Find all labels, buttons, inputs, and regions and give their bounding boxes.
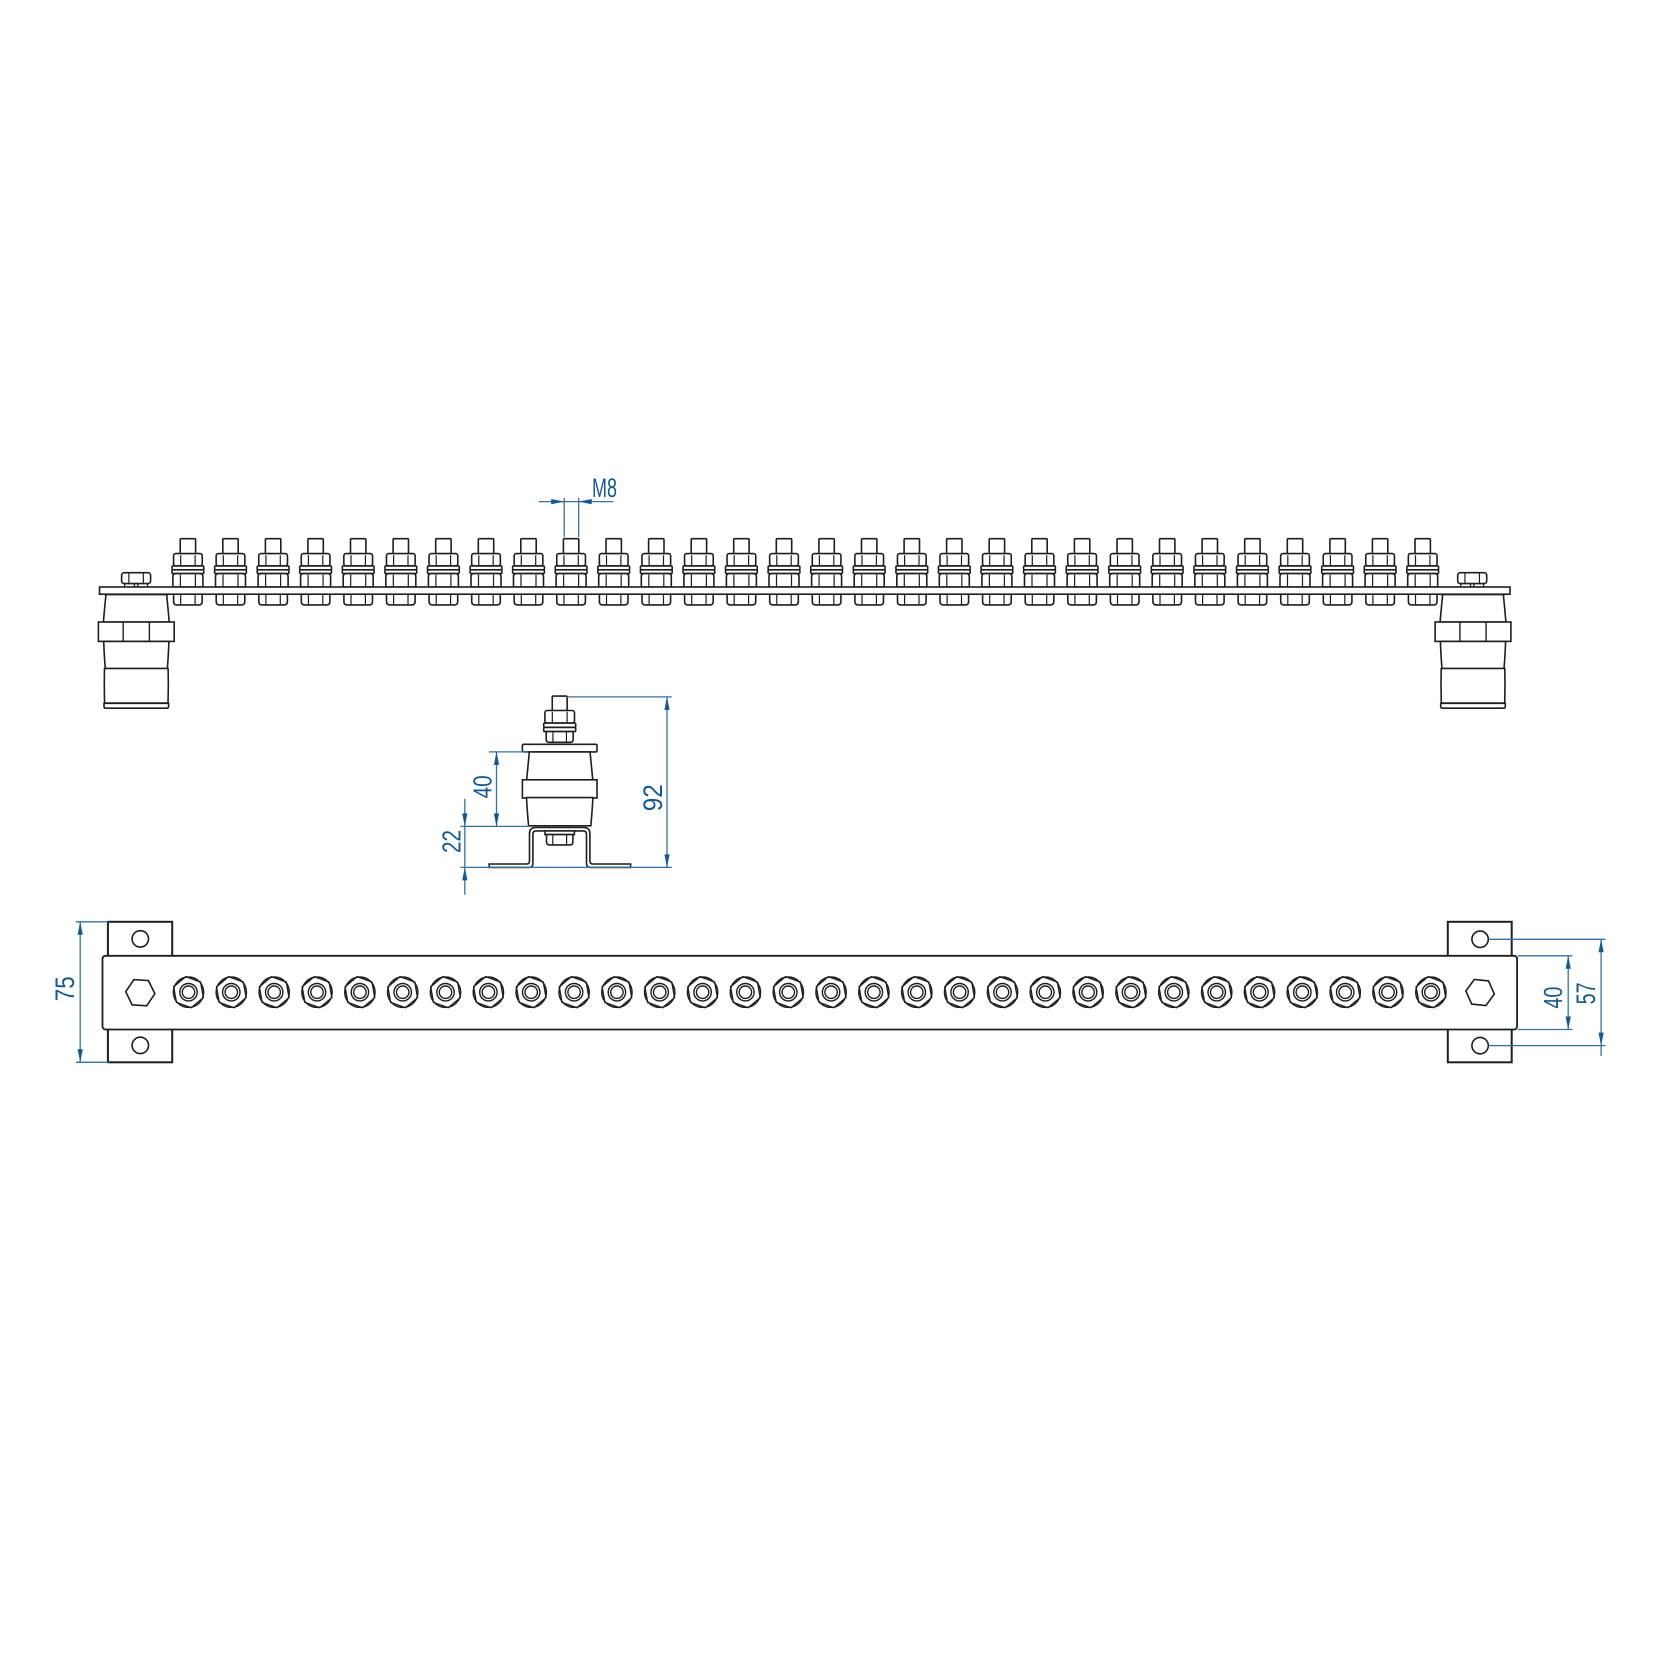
svg-text:92: 92 — [638, 784, 668, 811]
svg-text:75: 75 — [50, 976, 80, 1001]
svg-text:57: 57 — [1571, 982, 1601, 1004]
svg-text:M8: M8 — [592, 473, 617, 503]
svg-text:40: 40 — [468, 775, 498, 798]
svg-text:40: 40 — [1538, 987, 1568, 1009]
svg-text:22: 22 — [437, 830, 467, 853]
